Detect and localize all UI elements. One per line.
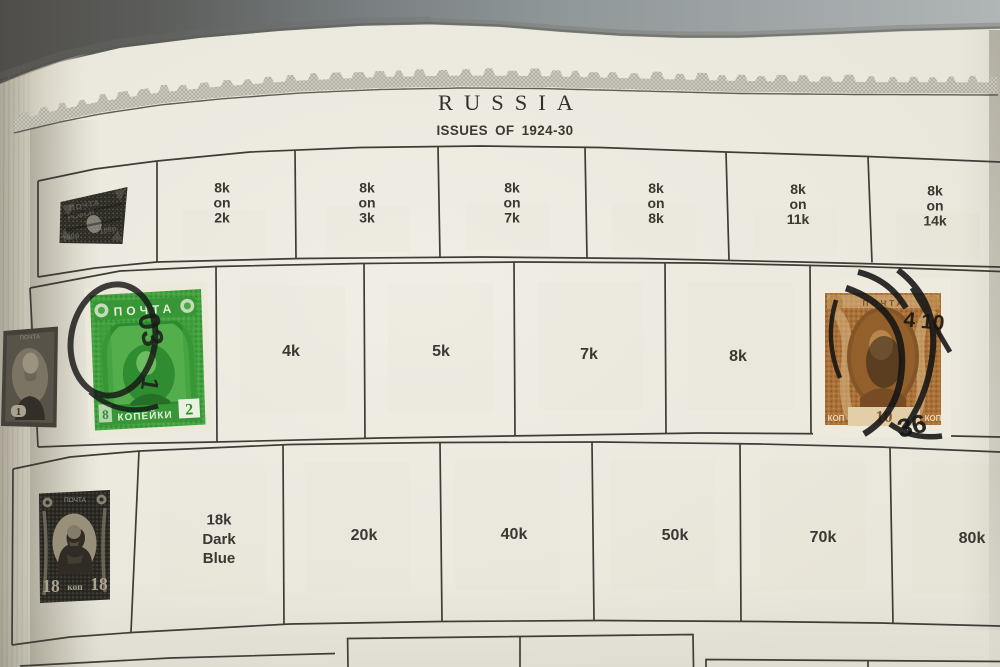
svg-text:8k: 8k bbox=[214, 180, 230, 196]
svg-text:КОП: КОП bbox=[925, 414, 942, 423]
svg-text:4 10: 4 10 bbox=[902, 308, 945, 335]
svg-text:14k: 14k bbox=[923, 213, 947, 229]
svg-text:2k: 2k bbox=[214, 210, 230, 226]
svg-text:50k: 50k bbox=[662, 527, 689, 544]
svg-text:on: on bbox=[647, 195, 664, 211]
svg-text:Blue: Blue bbox=[203, 550, 236, 567]
svg-text:RUSSIA: RUSSIA bbox=[438, 90, 584, 115]
svg-text:8k: 8k bbox=[648, 180, 664, 196]
svg-text:20k: 20k bbox=[351, 527, 378, 544]
svg-text:40k: 40k bbox=[501, 526, 528, 543]
svg-text:3k: 3k bbox=[359, 210, 375, 226]
svg-text:on: on bbox=[503, 195, 520, 211]
svg-text:8k: 8k bbox=[790, 181, 806, 197]
svg-text:2: 2 bbox=[185, 401, 194, 418]
svg-text:КОП: КОП bbox=[828, 414, 845, 423]
svg-text:8k: 8k bbox=[359, 180, 375, 196]
svg-text:on: on bbox=[213, 195, 230, 211]
svg-text:8k: 8k bbox=[729, 348, 747, 365]
svg-text:03: 03 bbox=[131, 310, 169, 349]
svg-text:on: on bbox=[789, 196, 806, 212]
svg-text:11k: 11k bbox=[787, 211, 810, 227]
svg-text:on: on bbox=[926, 198, 943, 214]
svg-text:5k: 5k bbox=[432, 343, 450, 360]
svg-text:70k: 70k bbox=[810, 529, 837, 546]
svg-text:7k: 7k bbox=[504, 210, 520, 226]
svg-text:7k: 7k bbox=[580, 346, 598, 363]
svg-text:on: on bbox=[358, 195, 375, 211]
svg-text:ISSUES OF 1924-30: ISSUES OF 1924-30 bbox=[436, 123, 573, 138]
svg-text:8k: 8k bbox=[927, 183, 943, 199]
svg-text:80k: 80k bbox=[959, 530, 986, 547]
svg-text:18k: 18k bbox=[206, 512, 232, 529]
svg-text:4k: 4k bbox=[282, 343, 300, 360]
svg-text:Dark: Dark bbox=[202, 531, 236, 548]
svg-text:8k: 8k bbox=[648, 210, 664, 226]
svg-text:8k: 8k bbox=[504, 180, 520, 196]
svg-text:ПОЧТА: ПОЧТА bbox=[64, 497, 87, 504]
svg-text:8: 8 bbox=[102, 407, 110, 422]
svg-text:1: 1 bbox=[16, 407, 21, 418]
